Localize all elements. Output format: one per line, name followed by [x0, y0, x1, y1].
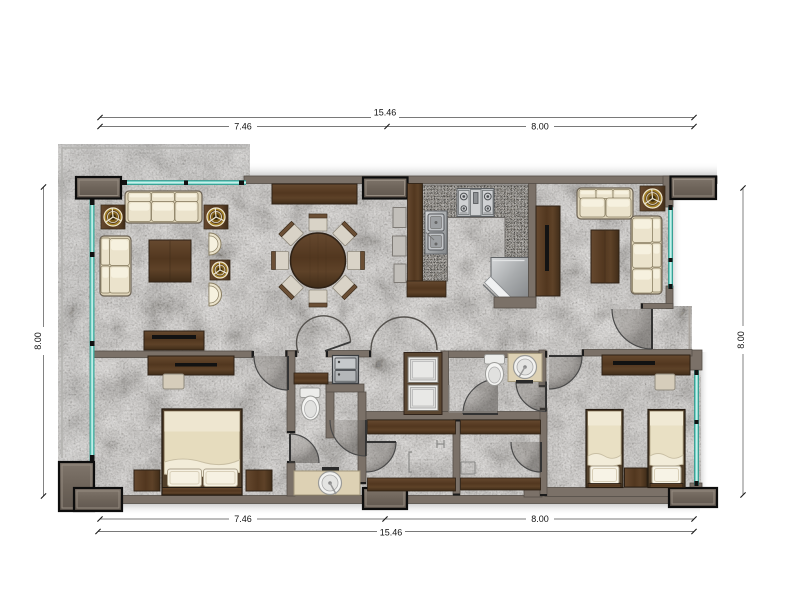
svg-text:8.00: 8.00: [531, 122, 549, 132]
svg-text:8.00: 8.00: [736, 331, 746, 349]
svg-text:8.00: 8.00: [531, 514, 549, 524]
svg-text:7.46: 7.46: [234, 122, 252, 132]
svg-text:15.46: 15.46: [380, 528, 403, 538]
svg-text:15.46: 15.46: [374, 108, 397, 118]
svg-text:7.46: 7.46: [234, 514, 252, 524]
svg-text:8.00: 8.00: [33, 332, 43, 350]
